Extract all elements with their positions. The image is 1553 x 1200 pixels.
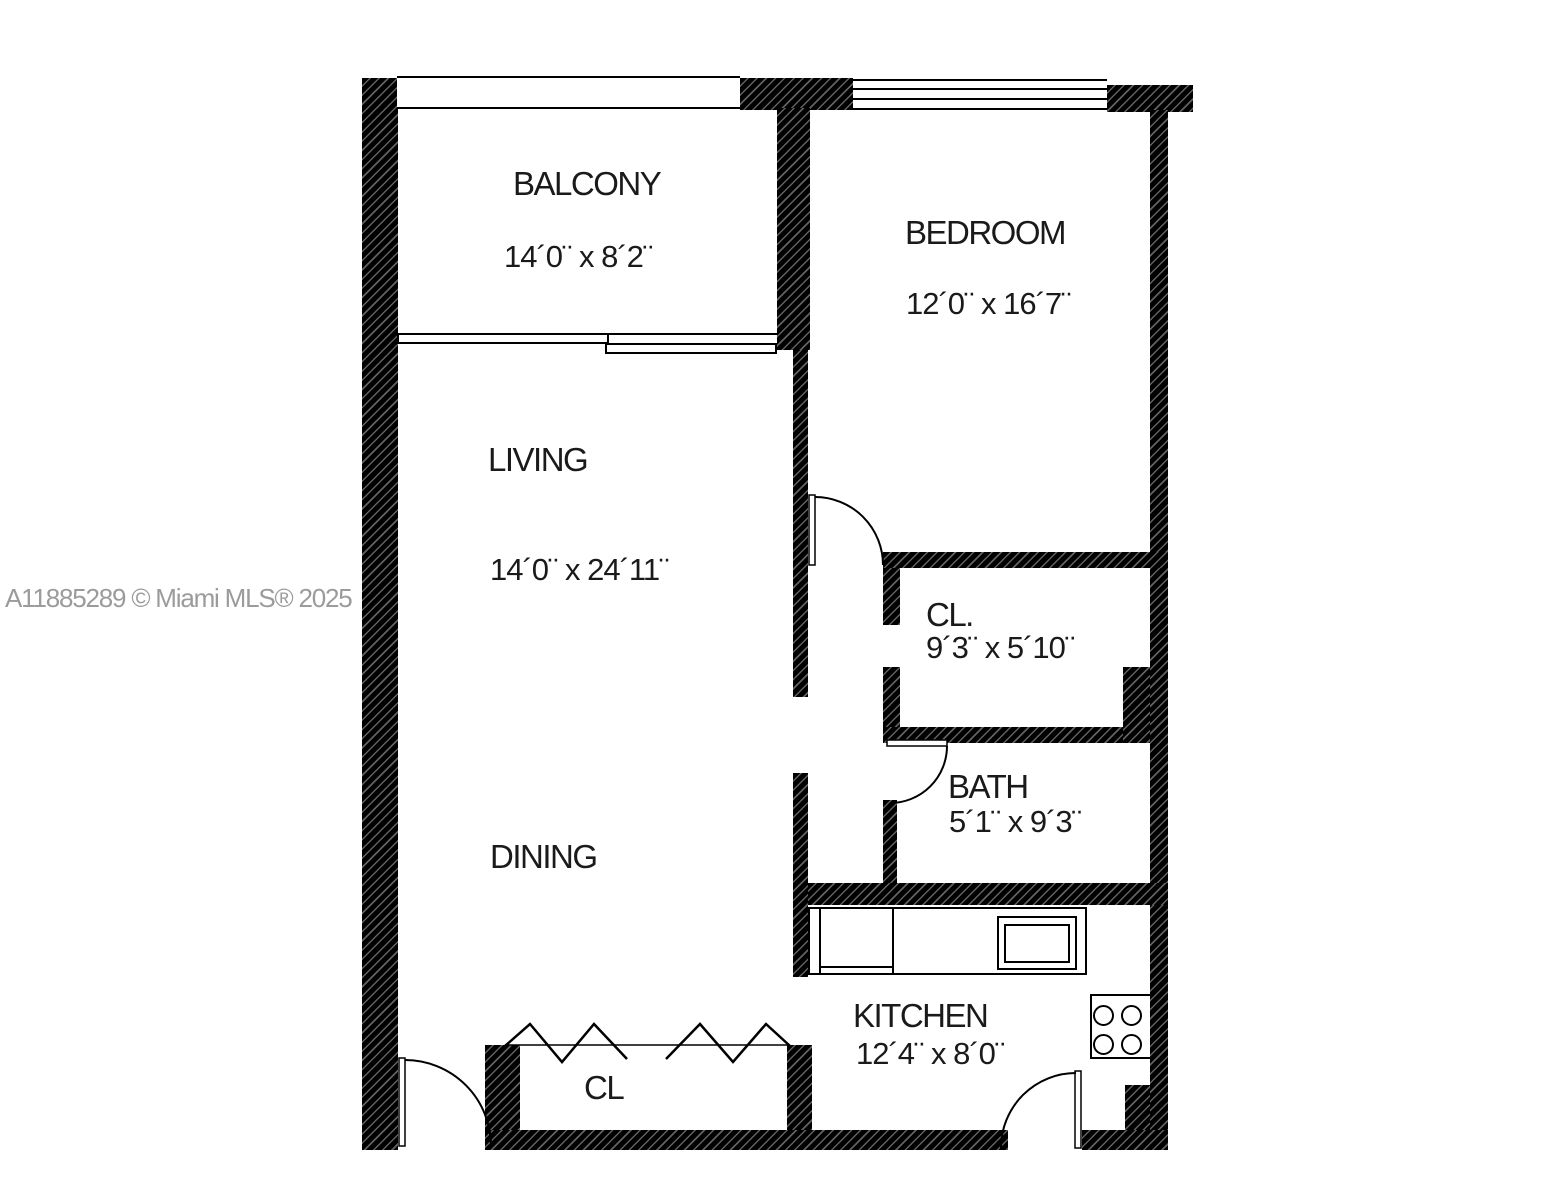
entry-door-leaf	[399, 1058, 405, 1146]
bath-door-arc	[890, 746, 947, 803]
bedroom-door-leaf	[809, 495, 815, 565]
closet1-dims: 9´3¨ x 5´10¨	[926, 632, 1074, 663]
door-symbols-layer	[0, 0, 1553, 1200]
bedroom-door-arc	[815, 497, 883, 565]
living-dims: 14´0¨ x 24´11¨	[490, 554, 668, 585]
bath-door-leaf	[887, 740, 947, 746]
balcony-dims: 14´0¨ x 8´2¨	[504, 241, 652, 272]
kitchen-label: KITCHEN	[853, 999, 987, 1032]
bath-label: BATH	[948, 770, 1028, 803]
bath-dims: 5´1¨ x 9´3¨	[949, 806, 1081, 837]
closet2-bifold-right	[666, 1024, 790, 1062]
kitchen-dims: 12´4¨ x 8´0¨	[856, 1038, 1004, 1069]
kitchen-door-arc	[1001, 1073, 1076, 1148]
bedroom-dims: 12´0¨ x 16´7¨	[906, 288, 1070, 319]
floor-plan: A11885289 © Miami MLS® 2025	[0, 0, 1553, 1200]
entry-door-arc	[405, 1060, 491, 1146]
bedroom-label: BEDROOM	[905, 216, 1065, 249]
closet1-label: CL.	[926, 598, 973, 631]
closet2-bifold-left	[505, 1024, 627, 1062]
balcony-label: BALCONY	[513, 167, 660, 200]
dining-label: DINING	[490, 840, 597, 873]
closet2-label: CL	[584, 1071, 623, 1104]
living-label: LIVING	[488, 443, 587, 476]
kitchen-door-leaf	[1075, 1071, 1081, 1148]
